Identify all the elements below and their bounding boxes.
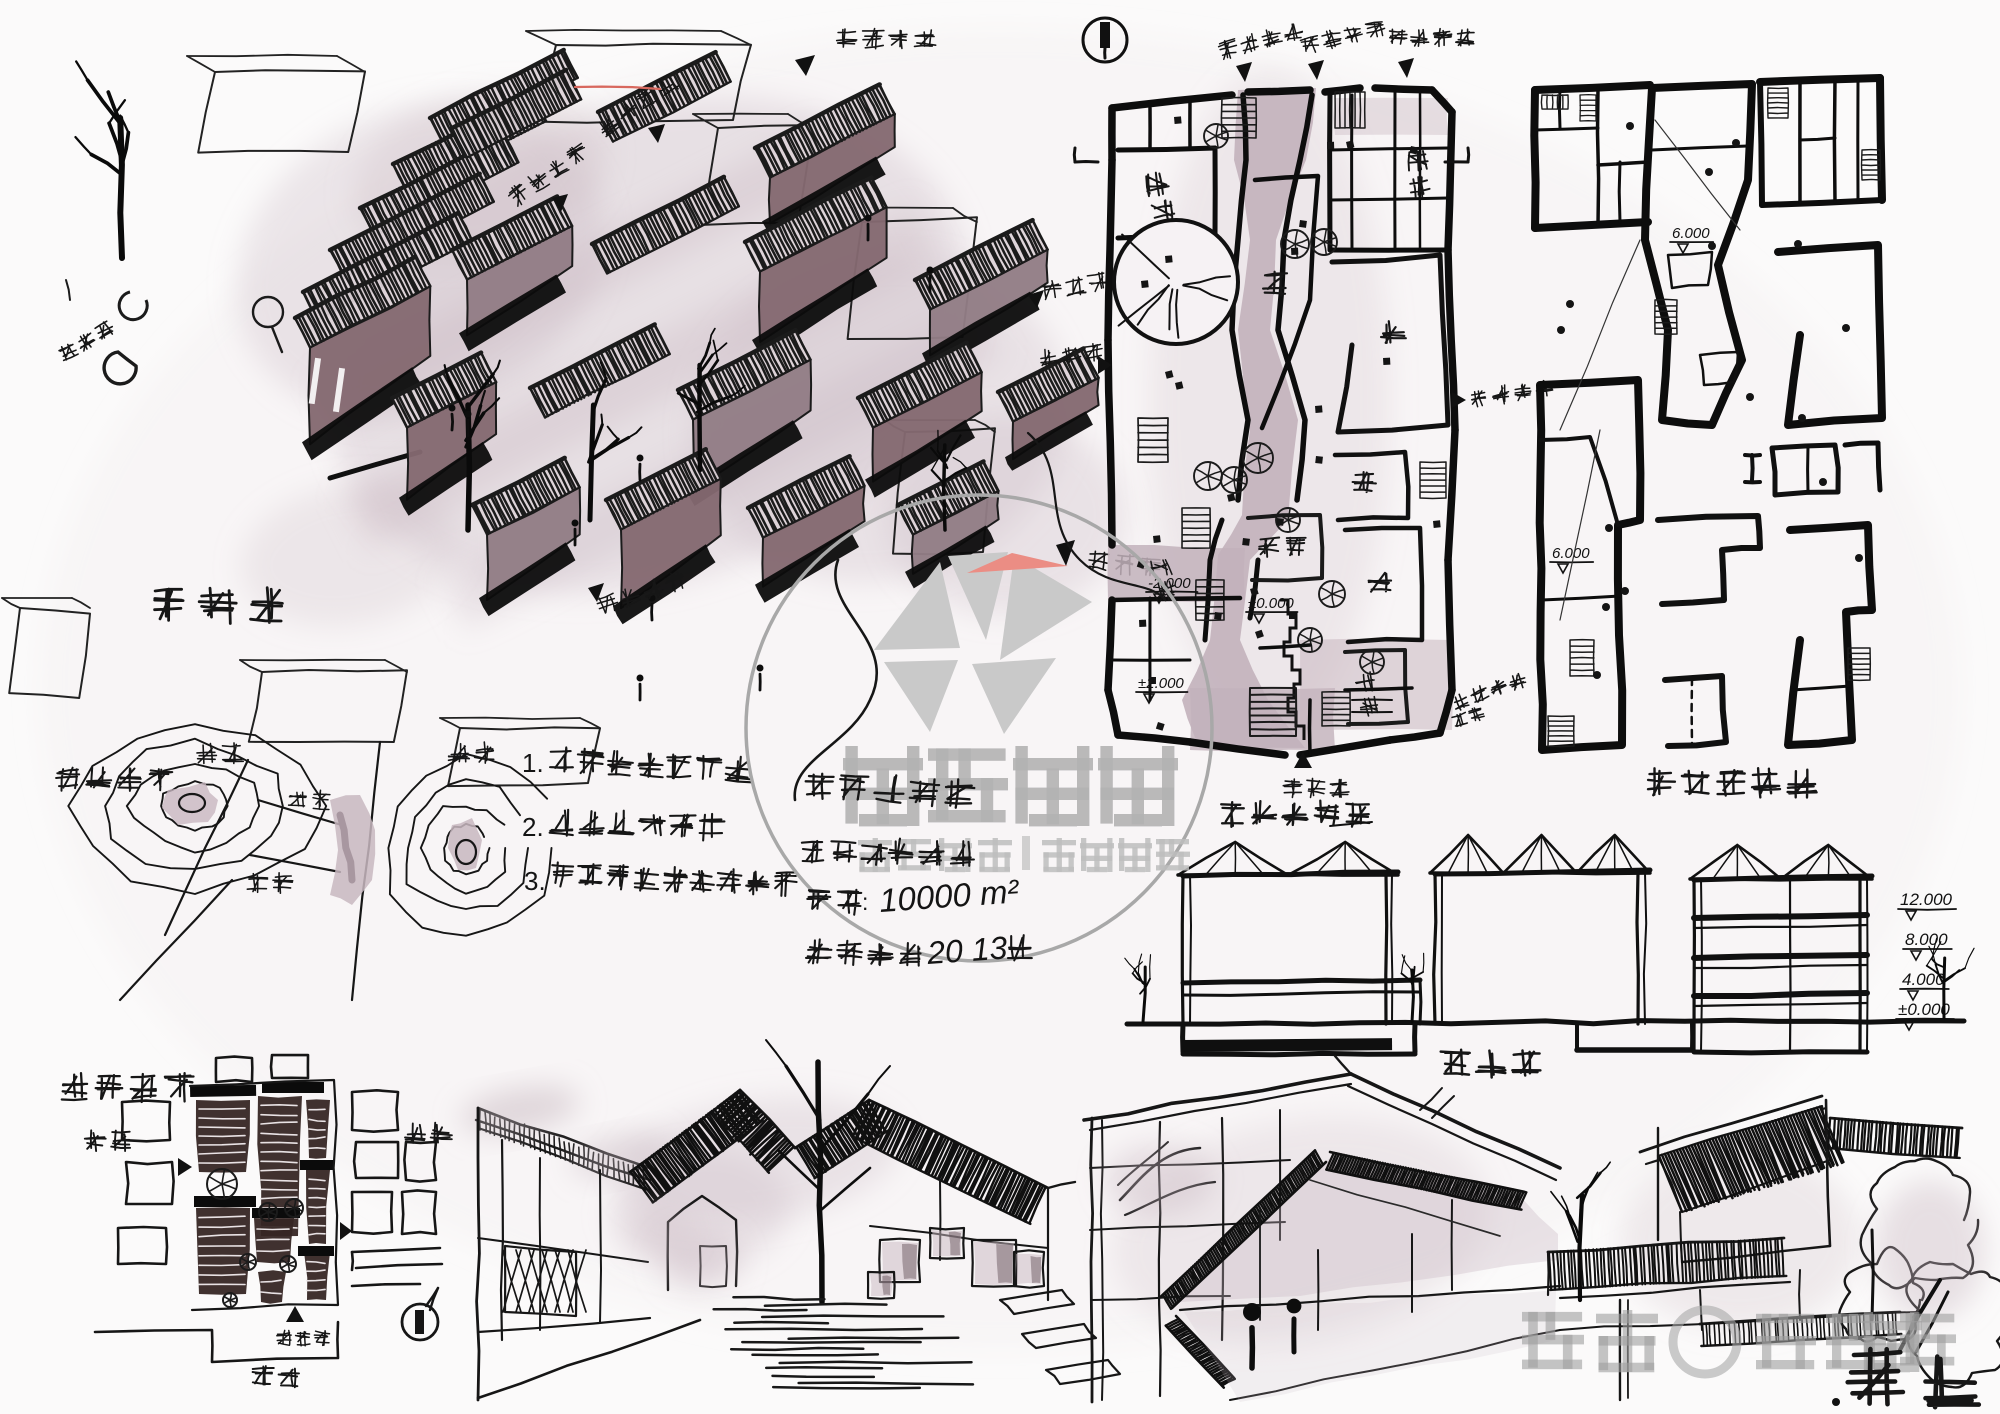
svg-text:12.000: 12.000: [1900, 890, 1953, 909]
svg-text:6.000: 6.000: [1552, 545, 1590, 562]
svg-text:6.000: 6.000: [1672, 225, 1710, 242]
svg-text::: :: [878, 842, 884, 867]
svg-text:2.: 2.: [522, 812, 544, 842]
svg-text:±2.000: ±2.000: [1138, 675, 1184, 692]
svg-text:1.: 1.: [522, 748, 544, 778]
svg-text:±0.000: ±0.000: [1248, 595, 1294, 612]
svg-text:3.: 3.: [524, 866, 546, 896]
svg-text:20 13: 20 13: [925, 929, 1009, 971]
svg-text::: :: [916, 939, 922, 965]
svg-text::: :: [862, 889, 868, 915]
svg-text:8.000: 8.000: [1905, 930, 1948, 949]
